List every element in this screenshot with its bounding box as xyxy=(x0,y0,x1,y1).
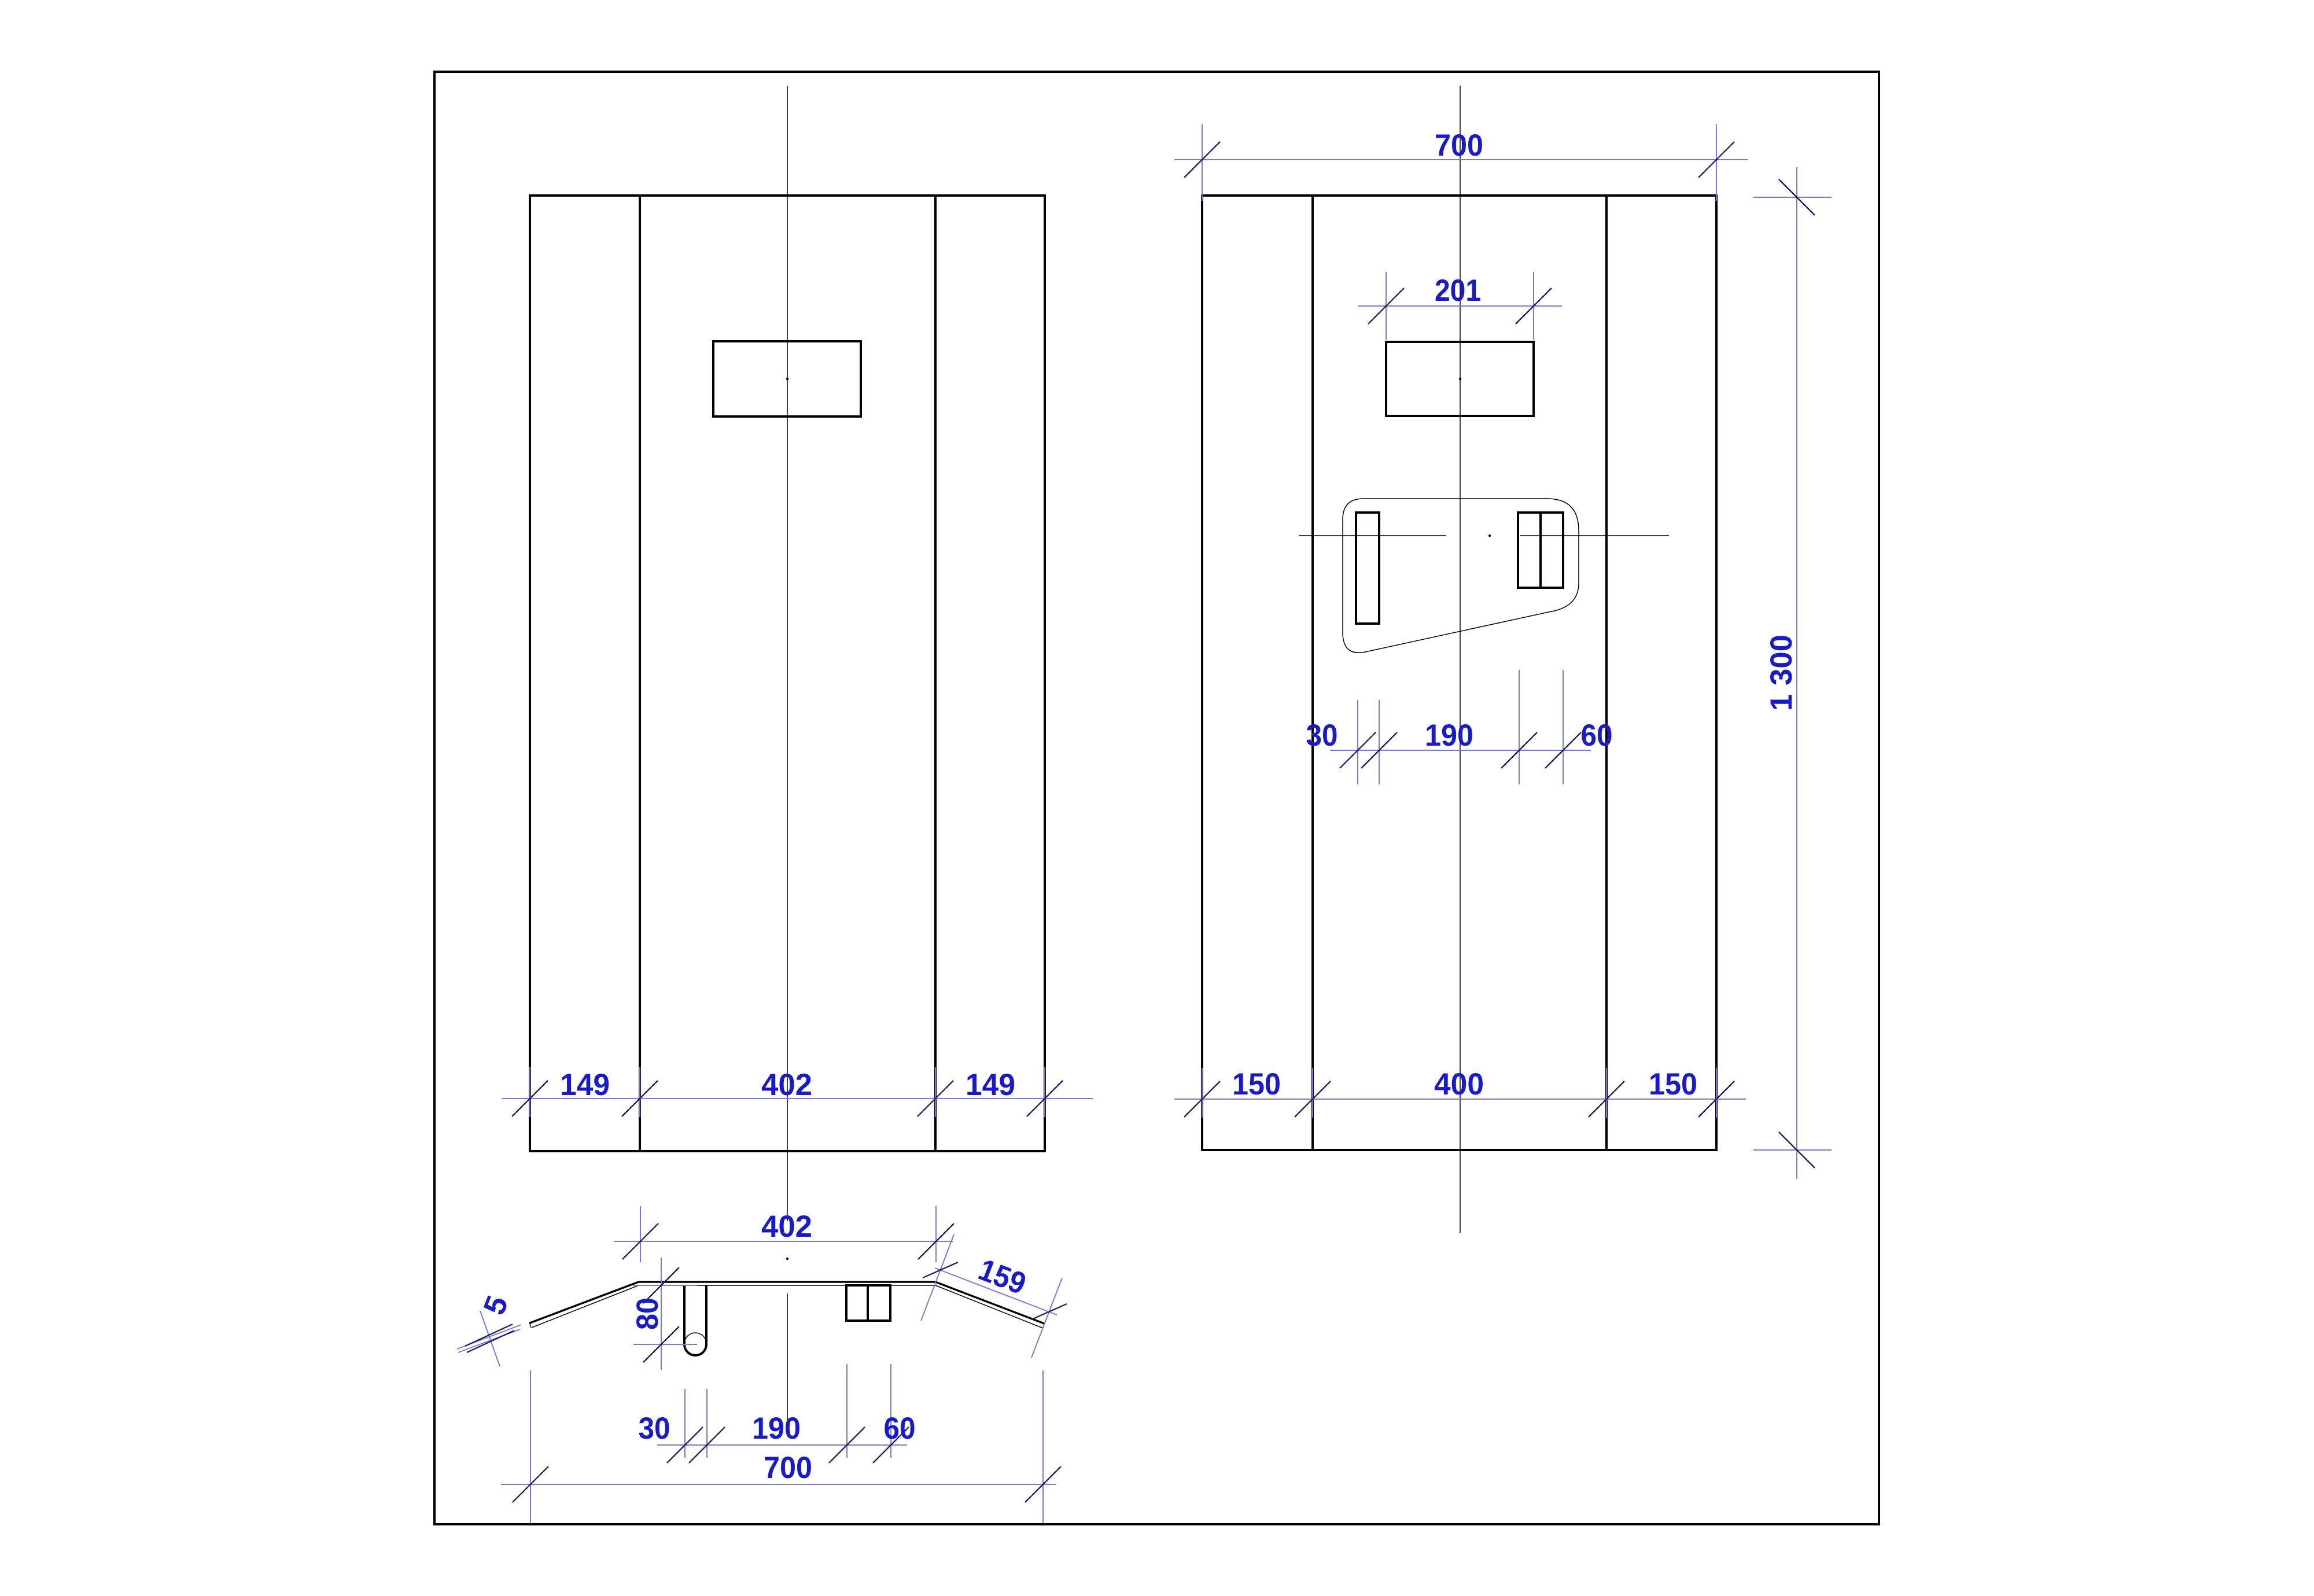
svg-text:190: 190 xyxy=(1425,718,1473,753)
svg-text:190: 190 xyxy=(752,1411,801,1446)
svg-text:1 300: 1 300 xyxy=(1764,635,1799,711)
svg-text:150: 150 xyxy=(1649,1067,1697,1101)
svg-text:60: 60 xyxy=(884,1411,916,1446)
svg-text:400: 400 xyxy=(1434,1067,1484,1101)
svg-text:30: 30 xyxy=(639,1411,670,1446)
svg-text:149: 149 xyxy=(966,1068,1015,1102)
svg-text:402: 402 xyxy=(761,1210,812,1244)
svg-text:700: 700 xyxy=(1435,128,1483,163)
svg-text:402: 402 xyxy=(761,1068,812,1102)
svg-text:149: 149 xyxy=(560,1068,610,1102)
svg-text:700: 700 xyxy=(764,1451,812,1485)
svg-text:201: 201 xyxy=(1435,274,1481,308)
svg-text:150: 150 xyxy=(1232,1067,1281,1101)
svg-text:60: 60 xyxy=(1581,718,1613,753)
svg-text:80: 80 xyxy=(631,1298,665,1330)
svg-text:30: 30 xyxy=(1306,718,1338,753)
